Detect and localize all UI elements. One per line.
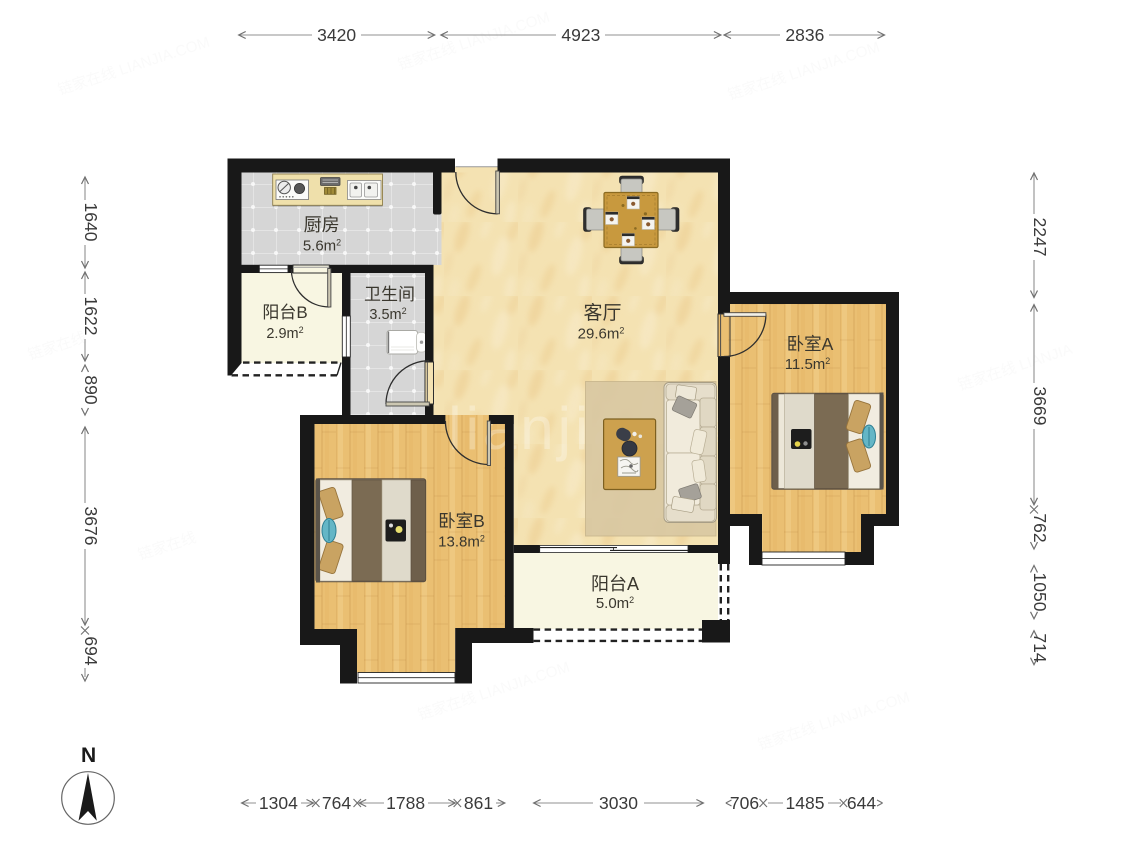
- svg-text:764: 764: [322, 793, 351, 813]
- svg-text:卫生间: 卫生间: [364, 285, 415, 304]
- svg-text:N: N: [81, 744, 96, 767]
- svg-text:1485: 1485: [786, 793, 825, 813]
- svg-text:厨房: 厨房: [304, 215, 340, 235]
- svg-text:13.8m2: 13.8m2: [438, 534, 485, 551]
- svg-text:1640: 1640: [81, 203, 101, 242]
- svg-text:阳台B: 阳台B: [262, 303, 307, 322]
- svg-text:2.9m2: 2.9m2: [266, 325, 303, 342]
- svg-text:5.0m2: 5.0m2: [596, 595, 634, 612]
- svg-text:762: 762: [1030, 513, 1050, 542]
- svg-text:714: 714: [1030, 633, 1050, 662]
- svg-text:3030: 3030: [599, 793, 638, 813]
- svg-text:29.6m2: 29.6m2: [578, 326, 625, 343]
- svg-text:3420: 3420: [317, 25, 356, 45]
- svg-text:4923: 4923: [561, 25, 600, 45]
- svg-text:3.5m2: 3.5m2: [369, 306, 406, 323]
- svg-text:890: 890: [81, 375, 101, 404]
- svg-text:1304: 1304: [259, 793, 298, 813]
- svg-text:1788: 1788: [386, 793, 425, 813]
- svg-text:1050: 1050: [1030, 573, 1050, 612]
- svg-text:3676: 3676: [81, 507, 101, 546]
- svg-text:5.6m2: 5.6m2: [303, 238, 341, 255]
- svg-text:2836: 2836: [785, 25, 824, 45]
- svg-text:706: 706: [730, 793, 759, 813]
- svg-text:11.5m2: 11.5m2: [785, 356, 831, 373]
- svg-text:卧室B: 卧室B: [438, 511, 485, 531]
- svg-text:卧室A: 卧室A: [787, 334, 834, 354]
- svg-text:694: 694: [81, 636, 101, 665]
- svg-text:客厅: 客厅: [583, 302, 621, 324]
- svg-text:1622: 1622: [81, 297, 101, 336]
- svg-text:阳台A: 阳台A: [591, 574, 639, 594]
- svg-text:2247: 2247: [1030, 218, 1050, 257]
- svg-text:861: 861: [464, 793, 493, 813]
- svg-text:3669: 3669: [1030, 387, 1050, 426]
- svg-text:644: 644: [847, 793, 876, 813]
